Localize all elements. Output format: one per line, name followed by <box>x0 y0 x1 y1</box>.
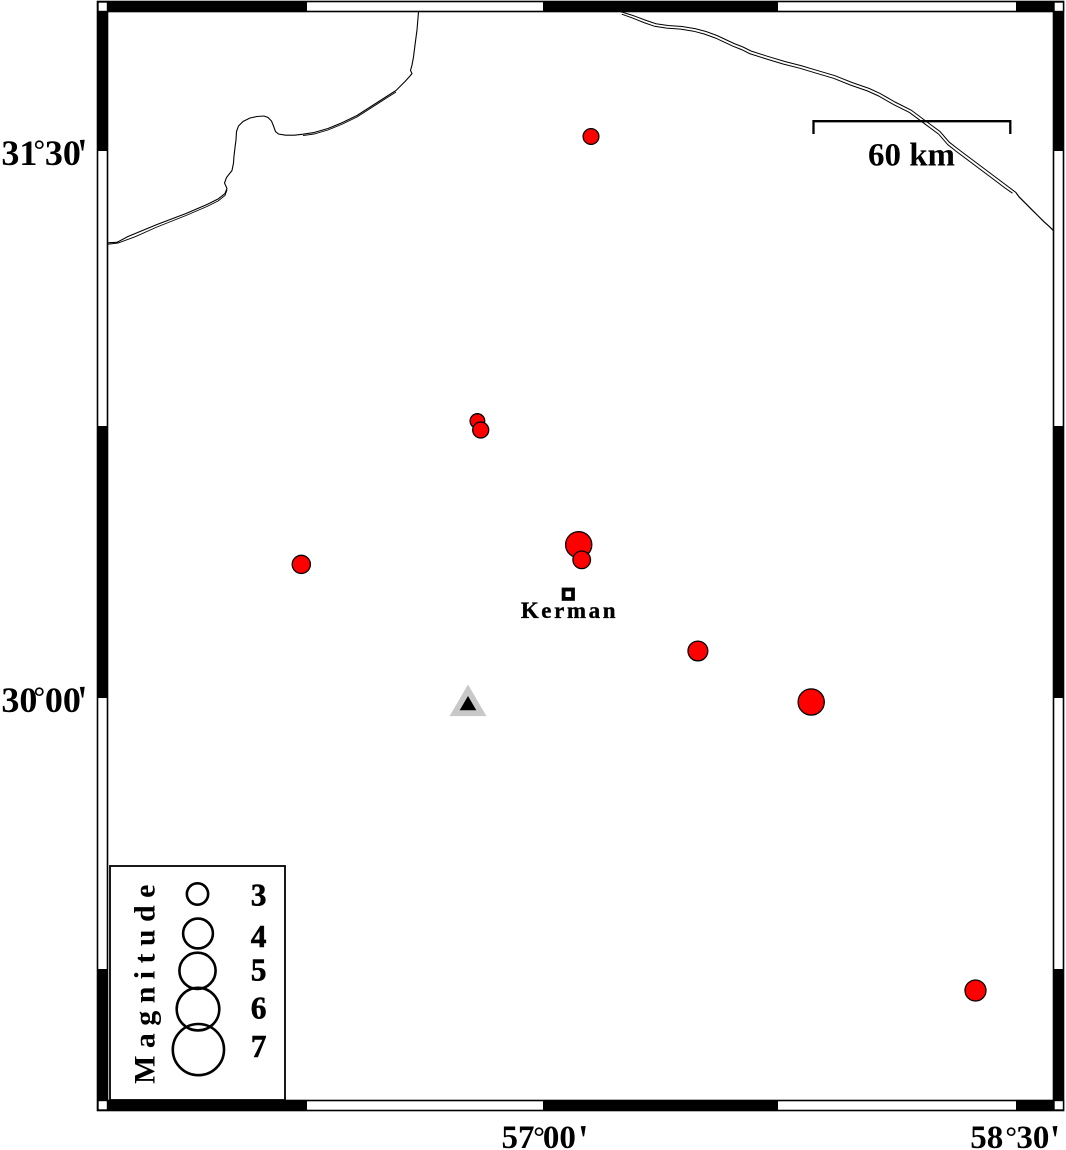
svg-text:°: ° <box>34 134 46 166</box>
svg-text:6: 6 <box>251 991 267 1026</box>
svg-text:30: 30 <box>1 680 37 720</box>
svg-text:31: 31 <box>1 133 37 173</box>
svg-text:°: ° <box>34 681 46 713</box>
svg-text:Kerman: Kerman <box>521 598 618 623</box>
svg-text:7: 7 <box>251 1029 267 1064</box>
svg-text:58: 58 <box>970 1120 1003 1150</box>
svg-text:30: 30 <box>1016 1120 1049 1150</box>
svg-text:00: 00 <box>45 680 81 720</box>
svg-text:30: 30 <box>45 133 81 173</box>
svg-text:3: 3 <box>251 878 267 913</box>
svg-text:00: 00 <box>543 1120 576 1150</box>
svg-text:4: 4 <box>251 919 267 954</box>
svg-text:°: ° <box>1005 1122 1017 1150</box>
svg-text:60 km: 60 km <box>868 138 955 174</box>
svg-text:5: 5 <box>251 953 267 988</box>
svg-text:Magnitude: Magnitude <box>129 877 162 1084</box>
svg-text:57: 57 <box>502 1120 535 1150</box>
